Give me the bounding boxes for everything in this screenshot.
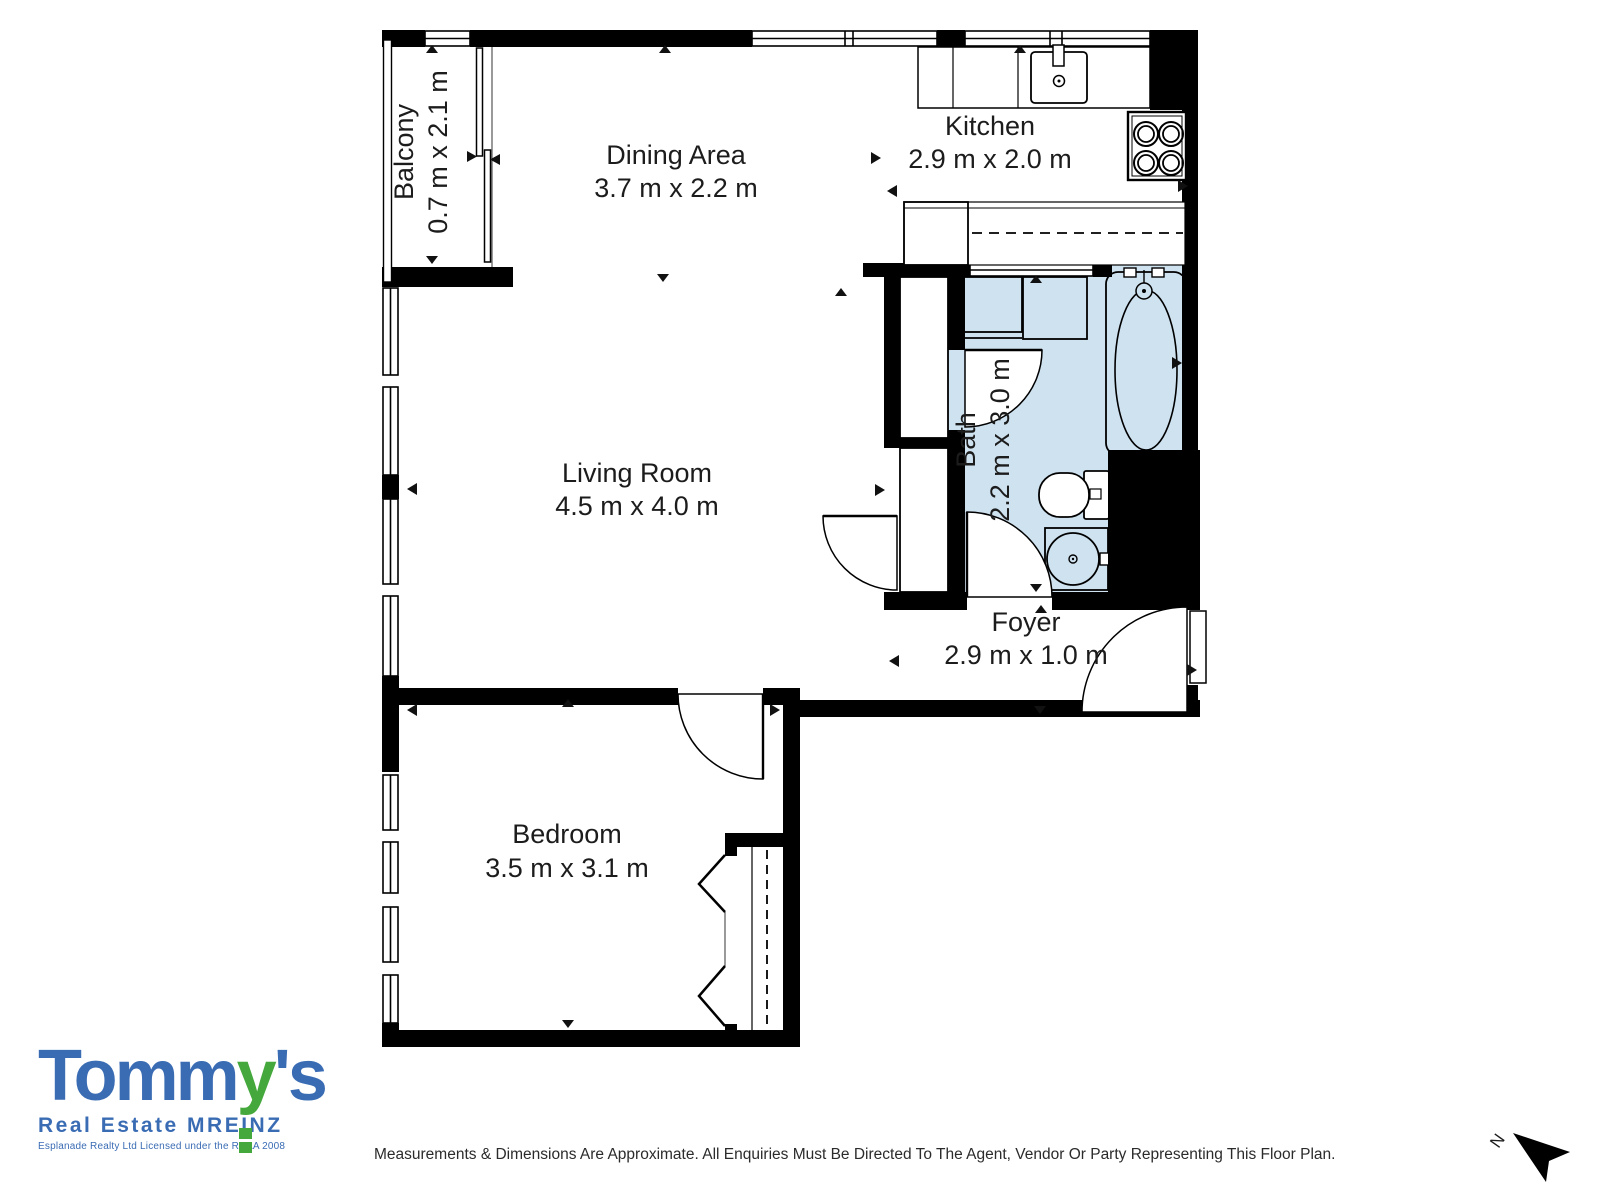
logo-word-apostrophe-s: 's <box>274 1036 325 1116</box>
key-tooth-icon <box>239 1142 252 1153</box>
room-dims: 2.2 m x 3.0 m <box>985 358 1015 522</box>
bedroom-wardrobe <box>699 847 767 1030</box>
balcony-sliding-door <box>477 47 493 267</box>
kitchen-sink <box>1031 45 1087 103</box>
bedroom-windows <box>383 775 398 1023</box>
room-dims: 3.5 m x 3.1 m <box>485 853 649 883</box>
room-label-foyer: Foyer 2.9 m x 1.0 m <box>944 607 1108 670</box>
bifold-door <box>699 966 725 1026</box>
room-name: Bath <box>951 412 981 468</box>
room-label-balcony: Balcony 0.7 m x 2.1 m <box>389 70 453 234</box>
bifold-door <box>699 855 725 912</box>
agency-logo: Tommy's Real Estate MREINZ Esplanade Rea… <box>38 1040 358 1152</box>
bath-internal-window <box>970 264 1093 276</box>
kitchen-window <box>965 31 1150 46</box>
floor-plan-page: Balcony 0.7 m x 2.1 m Dining Area 3.7 m … <box>0 0 1600 1200</box>
room-label-dining: Dining Area 3.7 m x 2.2 m <box>594 140 758 203</box>
closet-upper <box>900 277 948 438</box>
balcony-window <box>425 31 470 46</box>
logo-subtitle: Real Estate MREINZ <box>38 1114 358 1138</box>
logo-key-y: y <box>237 1036 274 1116</box>
key-tooth-icon <box>239 1128 252 1139</box>
room-label-kitchen: Kitchen 2.9 m x 2.0 m <box>908 111 1072 174</box>
disclaimer-text: Measurements & Dimensions Are Approximat… <box>374 1146 1335 1164</box>
north-compass: N <box>1486 1130 1570 1182</box>
north-label: N <box>1486 1130 1509 1151</box>
room-name: Foyer <box>991 607 1060 637</box>
logo-wordmark: Tommy's <box>38 1040 358 1112</box>
room-dims: 4.5 m x 4.0 m <box>555 491 719 521</box>
bedroom-door <box>678 694 763 779</box>
room-dims: 0.7 m x 2.1 m <box>423 70 453 234</box>
room-dims: 2.9 m x 1.0 m <box>944 640 1108 670</box>
room-label-bedroom: Bedroom 3.5 m x 3.1 m <box>485 819 649 883</box>
north-arrow-icon <box>1513 1133 1570 1182</box>
logo-license: Esplanade Realty Ltd Licensed under the … <box>38 1141 358 1152</box>
room-label-living: Living Room 4.5 m x 4.0 m <box>555 458 719 521</box>
kitchen-peninsula <box>904 202 1185 265</box>
room-name: Balcony <box>389 103 419 200</box>
room-name: Dining Area <box>606 140 747 170</box>
room-dims: 2.9 m x 2.0 m <box>908 144 1072 174</box>
room-name: Kitchen <box>945 111 1035 141</box>
storage-closets <box>900 277 948 592</box>
floor-plan: Balcony 0.7 m x 2.1 m Dining Area 3.7 m … <box>0 0 1600 1200</box>
room-name: Bedroom <box>512 819 622 849</box>
room-dims: 3.7 m x 2.2 m <box>594 173 758 203</box>
toilet <box>1039 471 1109 519</box>
storage-door <box>823 516 897 590</box>
closet-lower <box>900 448 948 592</box>
dining-window <box>752 31 937 46</box>
stove <box>1128 112 1186 180</box>
room-name: Living Room <box>562 458 712 488</box>
logo-word-blue: Tomm <box>38 1036 237 1116</box>
